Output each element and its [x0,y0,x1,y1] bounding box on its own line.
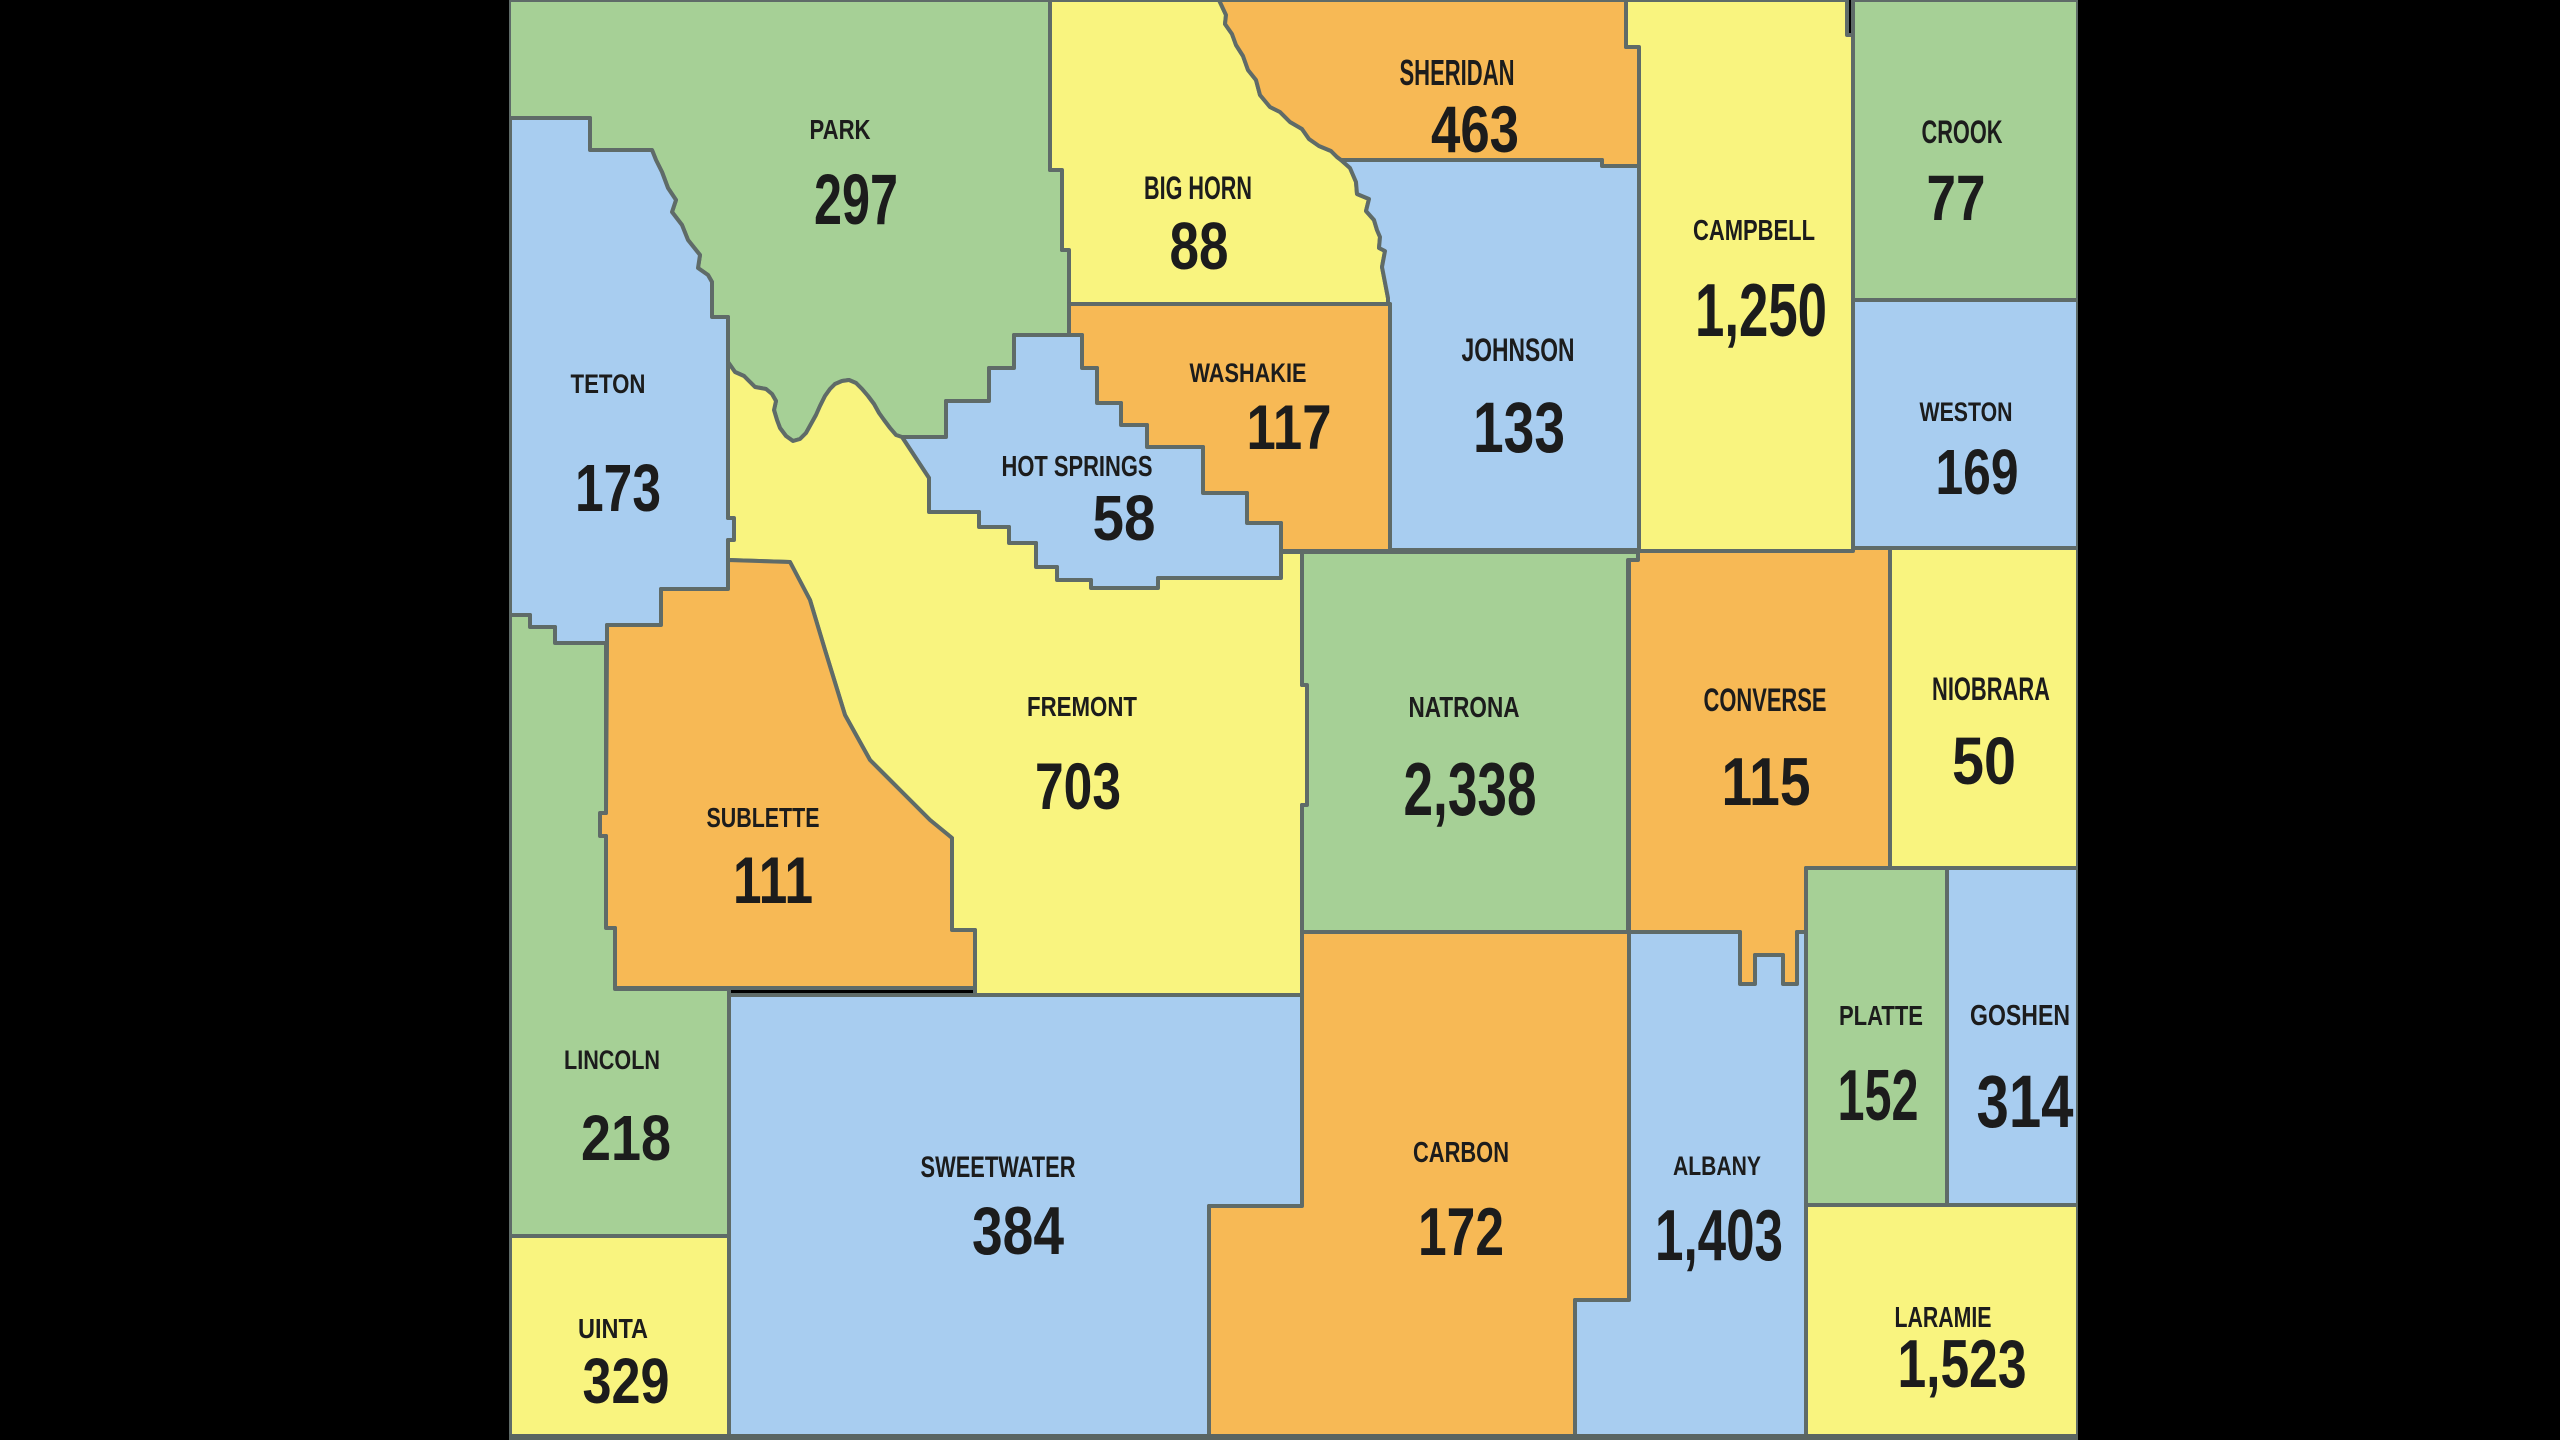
svg-text:GOSHEN: GOSHEN [1970,1000,2070,1032]
svg-text:NIOBRARA: NIOBRARA [1932,671,2050,707]
svg-text:JOHNSON: JOHNSON [1462,332,1575,368]
svg-text:1,250: 1,250 [1695,268,1827,352]
svg-text:88: 88 [1170,209,1229,284]
svg-text:TETON: TETON [571,369,646,399]
svg-text:WESTON: WESTON [1920,397,2013,427]
svg-text:NATRONA: NATRONA [1409,692,1520,724]
svg-text:HOT SPRINGS: HOT SPRINGS [1002,451,1153,483]
svg-text:FREMONT: FREMONT [1027,691,1137,722]
svg-text:CARBON: CARBON [1413,1137,1509,1169]
svg-text:58: 58 [1093,482,1156,554]
svg-text:314: 314 [1977,1060,2074,1143]
svg-text:1,523: 1,523 [1898,1326,2027,1402]
svg-text:CONVERSE: CONVERSE [1704,682,1827,718]
svg-text:329: 329 [583,1345,670,1417]
svg-text:WASHAKIE: WASHAKIE [1190,358,1307,388]
svg-text:77: 77 [1927,162,1986,234]
svg-text:PLATTE: PLATTE [1839,1000,1923,1031]
svg-text:2,338: 2,338 [1404,747,1537,831]
svg-text:133: 133 [1473,389,1565,468]
svg-text:UINTA: UINTA [578,1313,648,1344]
svg-text:BIG HORN: BIG HORN [1144,170,1252,206]
svg-text:50: 50 [1952,724,2016,799]
svg-text:1,403: 1,403 [1655,1196,1783,1276]
svg-text:SHERIDAN: SHERIDAN [1400,52,1515,93]
svg-text:SWEETWATER: SWEETWATER [921,1151,1076,1184]
svg-text:384: 384 [972,1193,1064,1269]
svg-text:115: 115 [1722,744,1811,820]
svg-text:218: 218 [581,1102,671,1174]
svg-text:173: 173 [575,451,661,526]
svg-text:152: 152 [1838,1056,1919,1136]
svg-text:CAMPBELL: CAMPBELL [1693,215,1815,247]
svg-text:ALBANY: ALBANY [1673,1151,1761,1181]
svg-text:169: 169 [1936,436,2019,508]
svg-text:297: 297 [814,161,898,240]
svg-text:703: 703 [1035,749,1121,823]
svg-text:111: 111 [733,843,813,917]
svg-text:463: 463 [1431,92,1519,166]
svg-text:172: 172 [1418,1194,1504,1270]
svg-text:LINCOLN: LINCOLN [564,1045,660,1075]
svg-text:CROOK: CROOK [1922,114,2003,150]
svg-text:SUBLETTE: SUBLETTE [707,802,820,833]
svg-text:117: 117 [1247,393,1332,463]
svg-text:PARK: PARK [810,114,871,145]
